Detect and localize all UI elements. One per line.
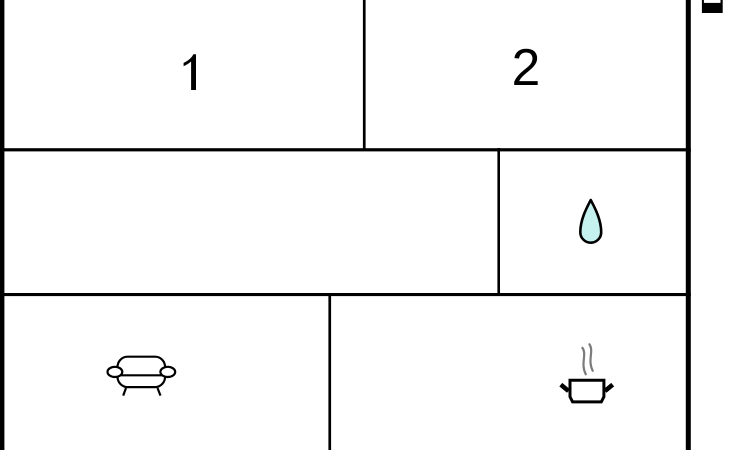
svg-text:2: 2 xyxy=(512,38,541,96)
